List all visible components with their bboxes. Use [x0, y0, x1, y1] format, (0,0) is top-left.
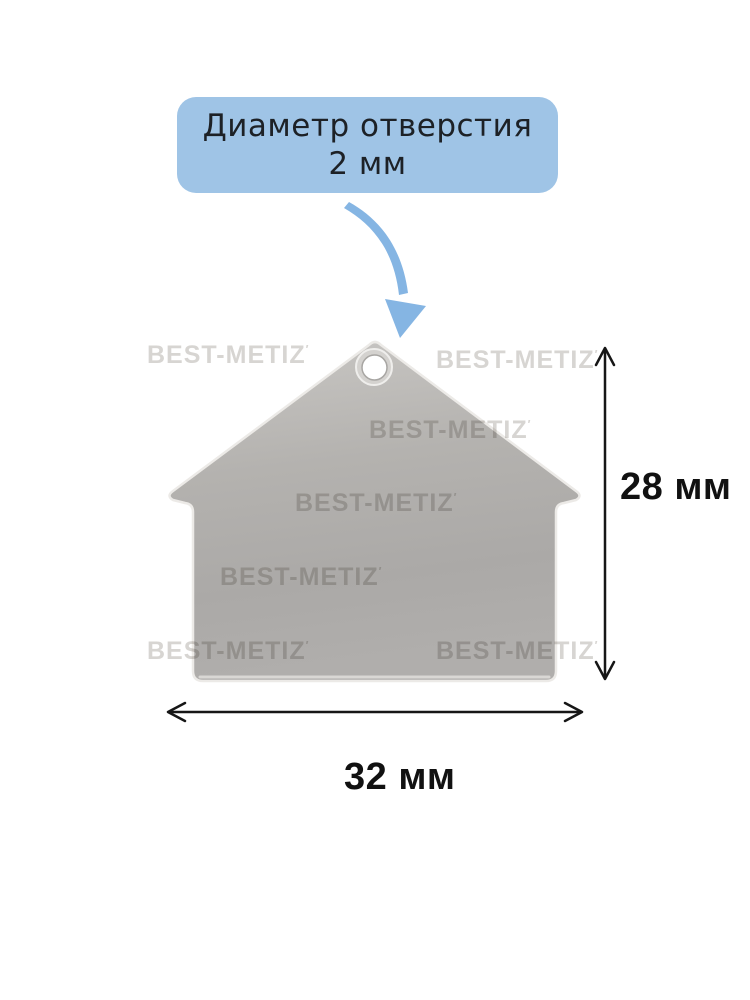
watermark: BEST-METIZ′ — [220, 563, 383, 592]
watermark: BEST-METIZ′ — [369, 416, 532, 445]
watermark: BEST-METIZ′ — [436, 346, 599, 375]
watermark: BEST-METIZ′ — [295, 489, 458, 518]
width-dimension-arrow — [168, 703, 582, 721]
watermark: BEST-METIZ′ — [436, 637, 599, 666]
height-dimension-arrow — [596, 348, 614, 679]
callout-arrow-icon — [344, 202, 426, 338]
product-image: Диаметр отверстия 2 мм — [0, 0, 750, 1000]
hole — [362, 355, 387, 380]
watermark: BEST-METIZ′ — [147, 341, 310, 370]
width-dimension-label: 32 мм — [344, 756, 456, 799]
watermark: BEST-METIZ′ — [147, 637, 310, 666]
height-dimension-label: 28 мм — [620, 466, 732, 509]
